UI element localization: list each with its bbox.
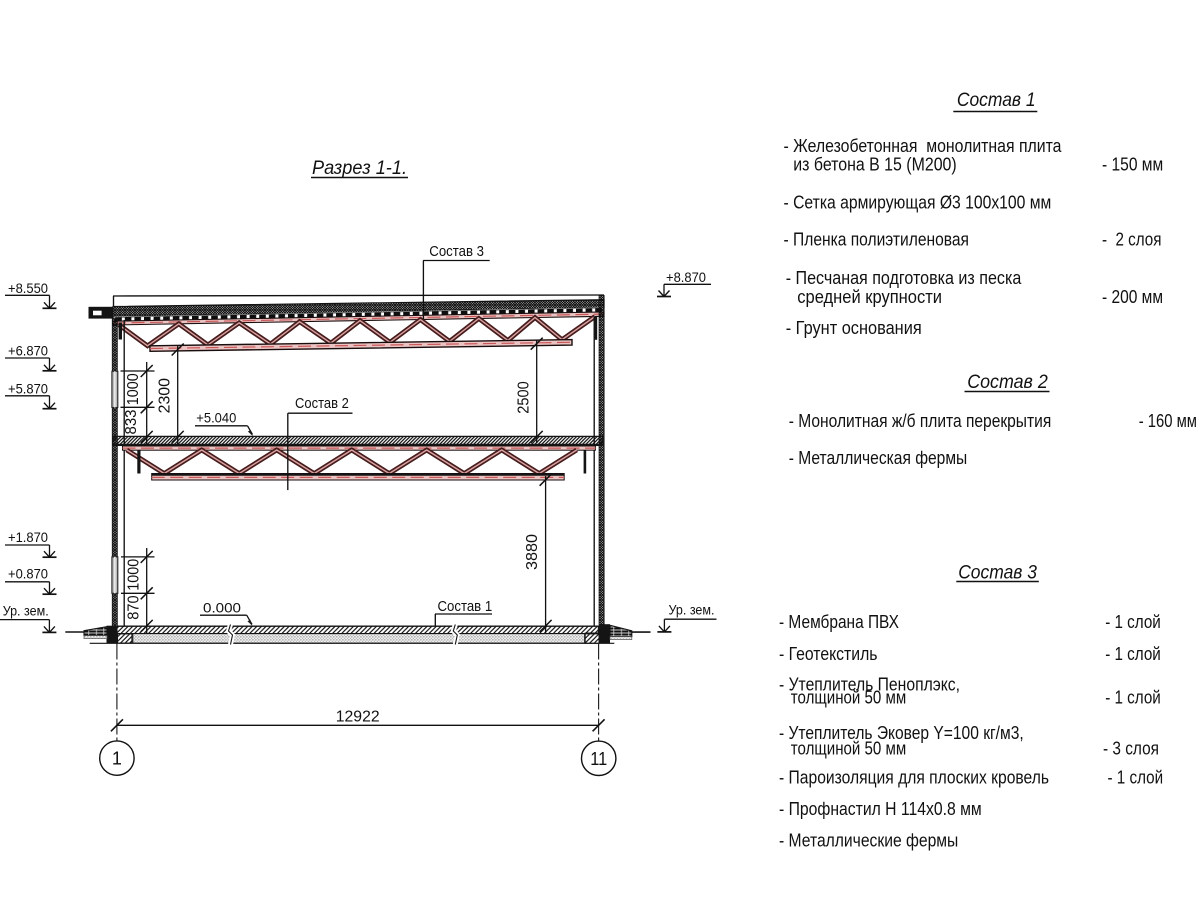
svg-text:12922: 12922 [336,708,380,725]
svg-text:- Железобетонная монолитная п: - Железобетонная монолитная плита [784,136,1063,156]
svg-text:833: 833 [123,409,140,434]
svg-text:- 3 слоя: - 3 слоя [1103,739,1159,759]
svg-text:толщиной 50 мм: толщиной 50 мм [791,688,906,708]
svg-text:+1.870: +1.870 [8,529,48,545]
svg-text:- 200 мм: - 200 мм [1102,287,1163,307]
svg-text:- Мембрана ПВХ: - Мембрана ПВХ [779,612,899,632]
svg-text:- Монолитная ж/б плита перекры: - Монолитная ж/б плита перекрытия [789,411,1052,431]
svg-text:- Профнастил Н 114х0.8 мм: - Профнастил Н 114х0.8 мм [779,799,982,819]
svg-text:1: 1 [112,749,122,769]
svg-text:0.000: 0.000 [203,599,241,615]
svg-text:- Металлическая фермы: - Металлическая фермы [789,448,968,468]
svg-text:+8.550: +8.550 [8,280,48,296]
svg-text:+5.870: +5.870 [8,381,48,397]
svg-text:из бетона В 15 (М200): из бетона В 15 (М200) [793,155,956,175]
svg-text:- 1 слой: - 1 слой [1105,688,1161,708]
svg-text:+5.040: +5.040 [196,410,236,426]
svg-text:- Металлические фермы: - Металлические фермы [779,831,958,851]
svg-text:Ур. зем.: Ур. зем. [3,603,49,619]
svg-text:Состав 1: Состав 1 [957,90,1036,111]
svg-text:Разрез 1-1.: Разрез 1-1. [312,158,407,179]
svg-text:Состав 3: Состав 3 [958,563,1037,584]
svg-text:+8.870: +8.870 [666,269,706,285]
svg-text:- Песчаная подготовка из песка: - Песчаная подготовка из песка [786,268,1022,288]
svg-text:средней крупности: средней крупности [797,287,942,307]
svg-text:- Грунт основания: - Грунт основания [786,318,922,338]
svg-text:- Пленка полиэтиленовая: - Пленка полиэтиленовая [784,230,970,250]
svg-text:11: 11 [590,749,607,769]
svg-text:- Сетка армирующая Ø3 100х100: - Сетка армирующая Ø3 100х100 мм [784,192,1052,212]
svg-text:- 2 слоя: - 2 слоя [1102,230,1162,250]
svg-text:Состав 2: Состав 2 [967,372,1048,393]
svg-text:- 1 слой: - 1 слой [1105,612,1161,632]
svg-text:- 1 слой: - 1 слой [1105,644,1161,664]
svg-text:толщиной 50 мм: толщиной 50 мм [791,739,906,759]
svg-text:- 150 мм: - 150 мм [1102,155,1163,175]
svg-text:- 160 мм: - 160 мм [1139,411,1197,431]
svg-text:- 1 слой: - 1 слой [1108,767,1164,787]
svg-text:Состав 3: Состав 3 [429,243,484,260]
svg-text:Ур. зем.: Ур. зем. [669,602,715,618]
svg-text:2500: 2500 [515,381,532,414]
svg-text:Состав 1: Состав 1 [438,598,493,615]
svg-text:- Пароизоляция для плоских кро: - Пароизоляция для плоских кровель [779,767,1049,787]
svg-text:870: 870 [126,595,143,619]
svg-text:1000: 1000 [126,559,143,591]
svg-text:1000: 1000 [125,373,142,405]
svg-text:2300: 2300 [156,378,173,413]
svg-text:3880: 3880 [524,534,541,570]
svg-text:+6.870: +6.870 [8,343,48,359]
svg-text:Состав 2: Состав 2 [295,395,349,412]
svg-text:- Геотекстиль: - Геотекстиль [779,644,878,664]
svg-text:+0.870: +0.870 [8,566,48,582]
